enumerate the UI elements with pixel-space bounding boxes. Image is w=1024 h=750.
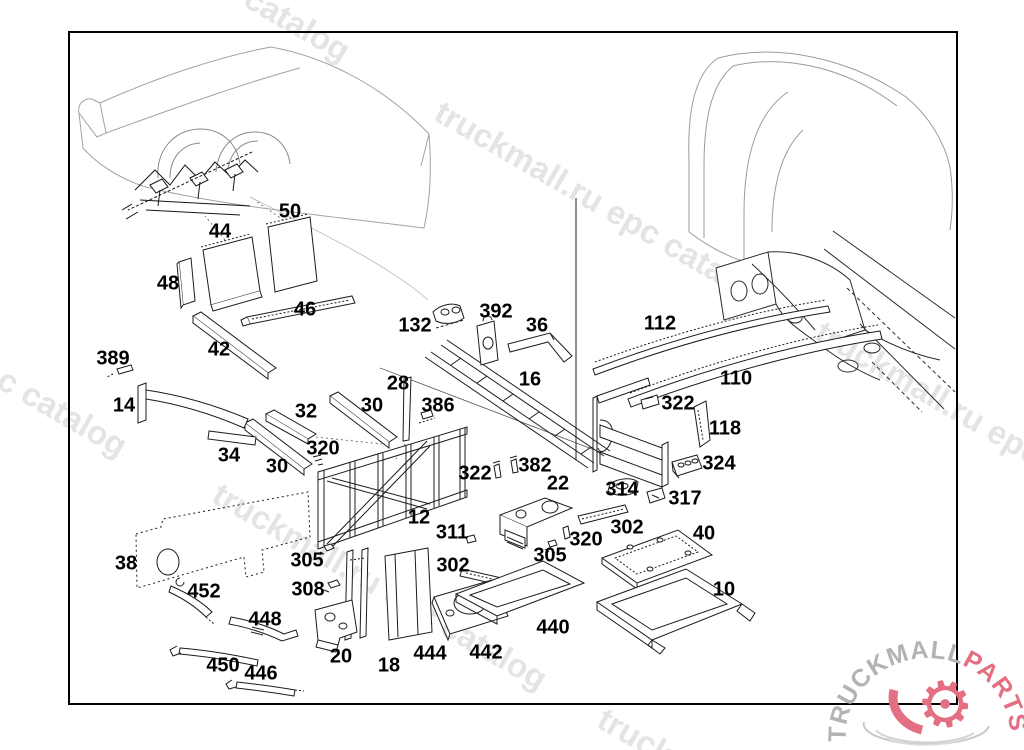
part-label-305: 305 <box>533 545 566 568</box>
part-label-34: 34 <box>218 445 240 468</box>
part-label-440: 440 <box>536 617 569 640</box>
part-label-20: 20 <box>330 646 352 669</box>
part-label-10: 10 <box>713 579 735 602</box>
part-label-317: 317 <box>668 488 701 511</box>
part-label-444: 444 <box>413 643 446 666</box>
diagram-page: truckmall.ru epc catalogtruckmall.ru epc… <box>0 0 1024 750</box>
part-label-320: 320 <box>306 438 339 461</box>
part-label-448: 448 <box>248 609 281 632</box>
part-label-46: 46 <box>294 299 316 322</box>
part-label-446: 446 <box>244 663 277 686</box>
part-label-442: 442 <box>469 642 502 665</box>
part-label-40: 40 <box>693 523 715 546</box>
part-label-50: 50 <box>279 201 301 224</box>
part-label-322: 322 <box>661 393 694 416</box>
part-label-38: 38 <box>115 553 137 576</box>
brand-logo: ⚙ TRUCKMALLPARTS <box>824 630 1024 750</box>
part-label-132: 132 <box>398 315 431 338</box>
part-label-36: 36 <box>526 315 548 338</box>
part-label-308: 308 <box>291 579 324 602</box>
part-label-324: 324 <box>702 453 735 476</box>
part-label-320: 320 <box>569 529 602 552</box>
part-label-14: 14 <box>113 395 135 418</box>
part-label-118: 118 <box>709 418 741 441</box>
part-label-311: 311 <box>436 522 468 545</box>
part-label-18: 18 <box>378 655 400 678</box>
part-label-28: 28 <box>387 373 409 396</box>
part-label-112: 112 <box>644 313 676 336</box>
part-label-110: 110 <box>720 368 752 391</box>
part-label-392: 392 <box>479 301 512 324</box>
part-label-305: 305 <box>290 550 323 573</box>
part-label-44: 44 <box>209 221 231 244</box>
part-label-30: 30 <box>361 395 383 418</box>
part-label-22: 22 <box>547 473 569 496</box>
part-label-48: 48 <box>157 273 179 296</box>
part-label-32: 32 <box>295 401 317 424</box>
part-label-302: 302 <box>610 517 643 540</box>
part-label-30: 30 <box>266 456 288 479</box>
part-label-314: 314 <box>605 479 638 502</box>
part-label-452: 452 <box>187 581 220 604</box>
part-label-302: 302 <box>436 555 469 578</box>
part-label-450: 450 <box>206 655 239 678</box>
part-label-386: 386 <box>421 395 454 418</box>
part-label-389: 389 <box>96 348 129 371</box>
part-label-322: 322 <box>458 463 491 486</box>
part-label-16: 16 <box>519 369 541 392</box>
part-label-42: 42 <box>208 339 230 362</box>
part-label-12: 12 <box>408 507 430 530</box>
